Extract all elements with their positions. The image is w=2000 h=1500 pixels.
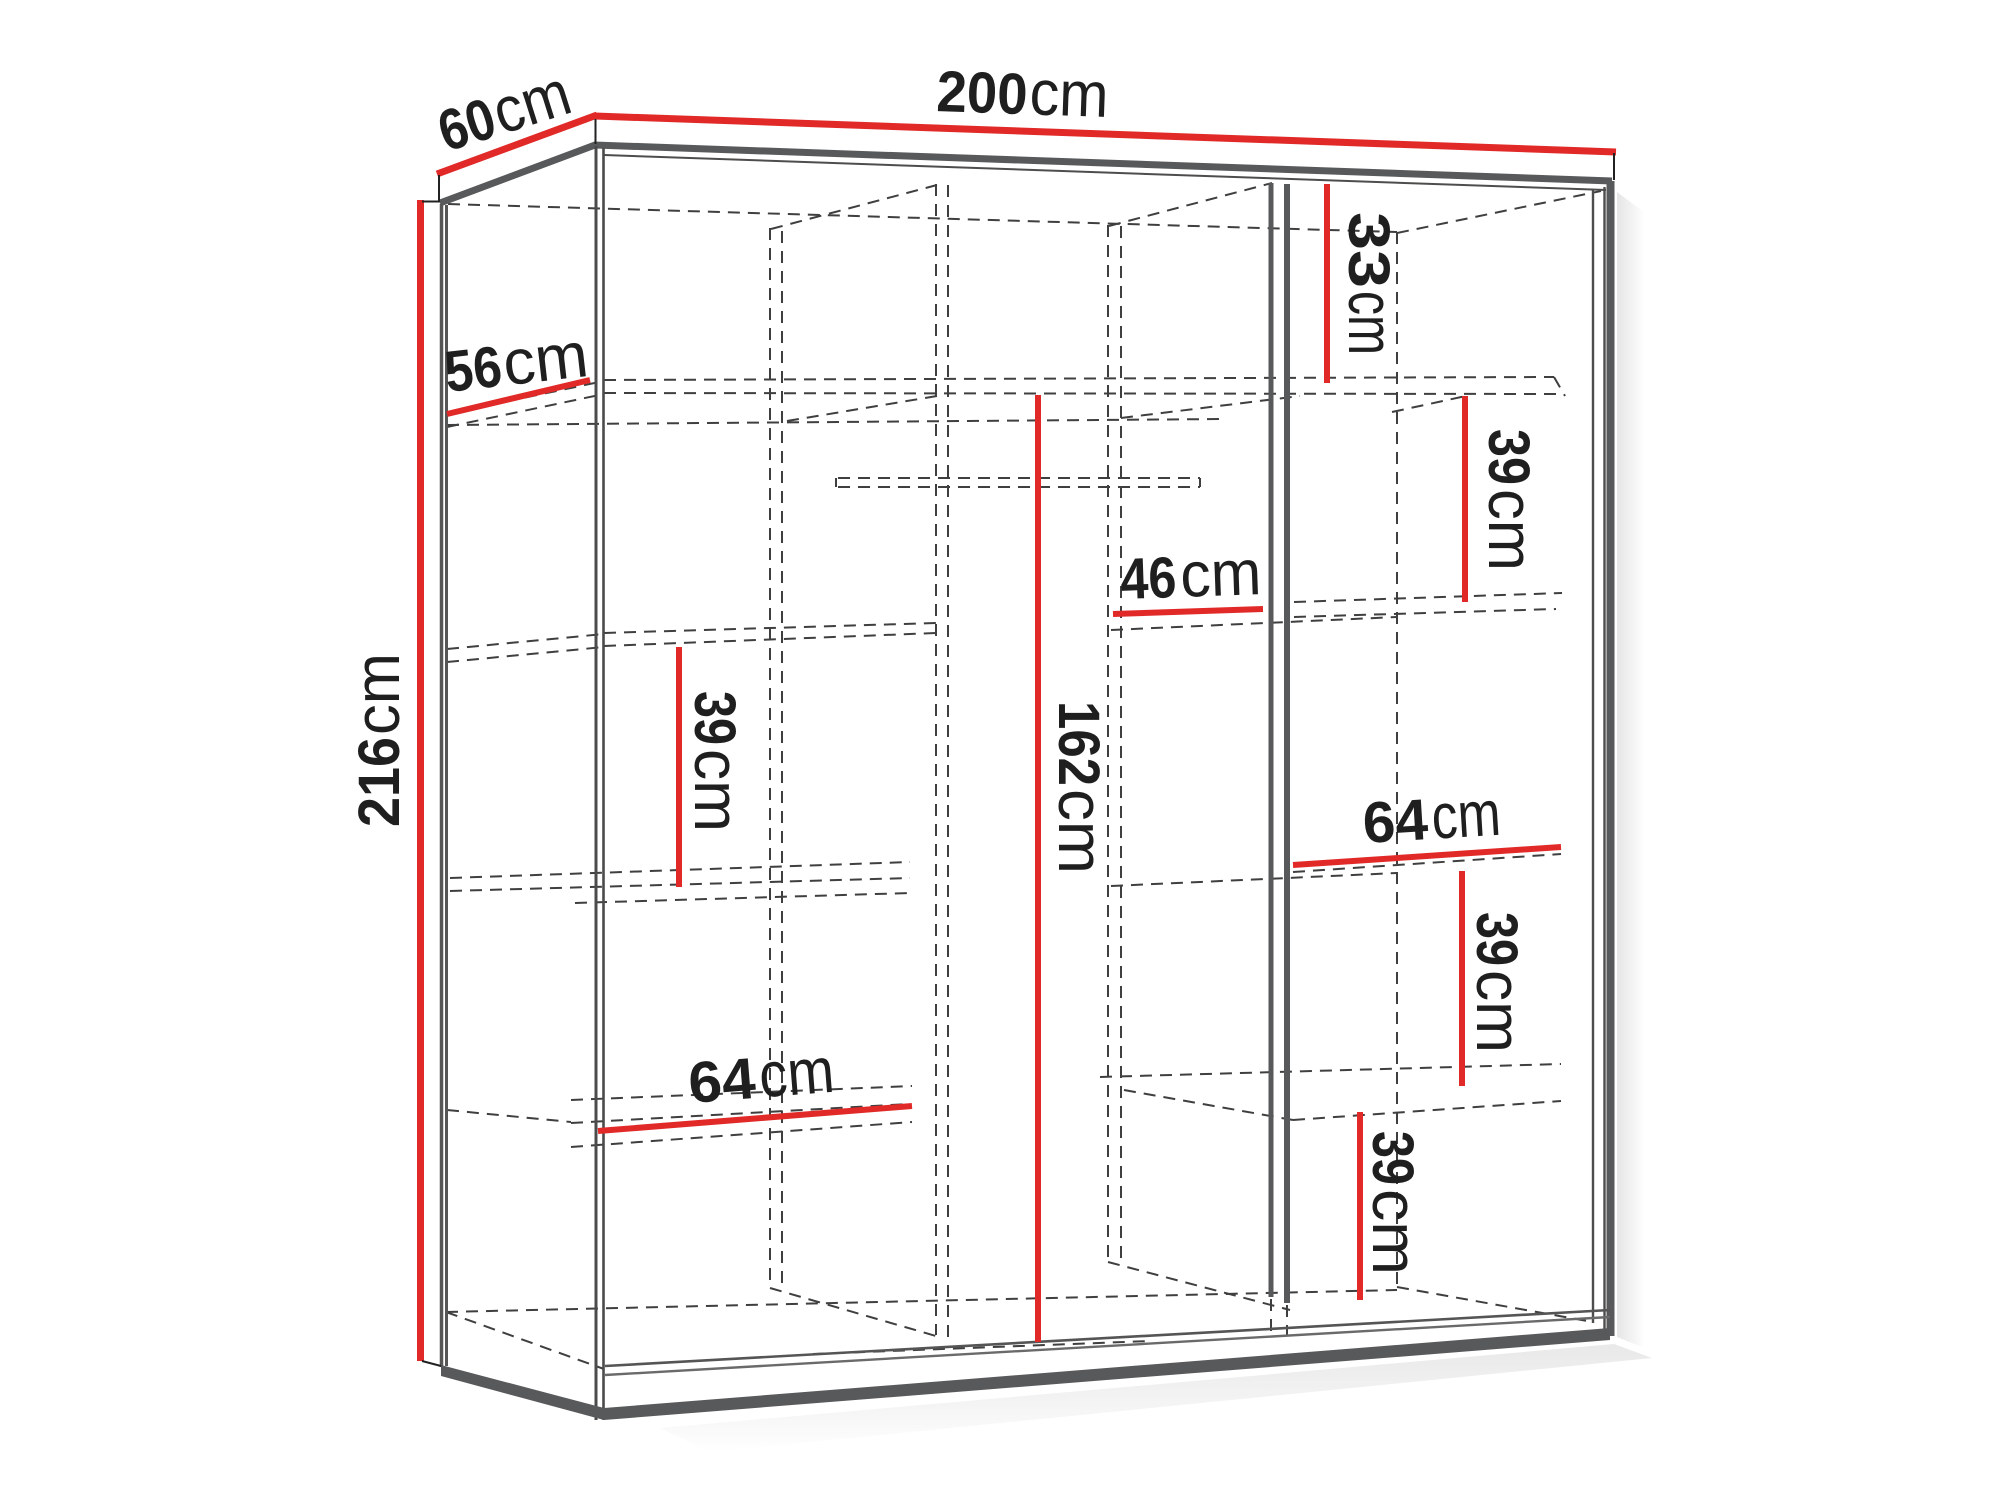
svg-text:cm: cm bbox=[1045, 789, 1117, 874]
svg-text:cm: cm bbox=[1359, 1189, 1431, 1275]
svg-text:cm: cm bbox=[1028, 56, 1109, 131]
svg-text:64: 64 bbox=[1361, 787, 1430, 856]
svg-text:216: 216 bbox=[347, 737, 412, 827]
svg-text:39: 39 bbox=[682, 691, 747, 745]
svg-text:56: 56 bbox=[441, 334, 505, 405]
svg-text:39: 39 bbox=[1476, 429, 1541, 485]
svg-text:cm: cm bbox=[1475, 489, 1547, 571]
svg-text:cm: cm bbox=[1429, 777, 1502, 853]
svg-text:cm: cm bbox=[681, 749, 753, 832]
svg-text:46: 46 bbox=[1119, 545, 1177, 612]
svg-text:39: 39 bbox=[1464, 912, 1529, 966]
svg-text:33: 33 bbox=[1336, 212, 1401, 288]
svg-text:cm: cm bbox=[1335, 291, 1407, 355]
svg-text:cm: cm bbox=[1179, 536, 1262, 611]
svg-text:200: 200 bbox=[936, 59, 1029, 127]
svg-text:cm: cm bbox=[499, 318, 592, 399]
svg-text:cm: cm bbox=[341, 653, 413, 735]
svg-text:cm: cm bbox=[1463, 970, 1535, 1053]
svg-text:162: 162 bbox=[1046, 701, 1111, 786]
svg-text:cm: cm bbox=[756, 1034, 836, 1112]
svg-text:64: 64 bbox=[686, 1046, 758, 1116]
svg-text:39: 39 bbox=[1360, 1131, 1425, 1185]
